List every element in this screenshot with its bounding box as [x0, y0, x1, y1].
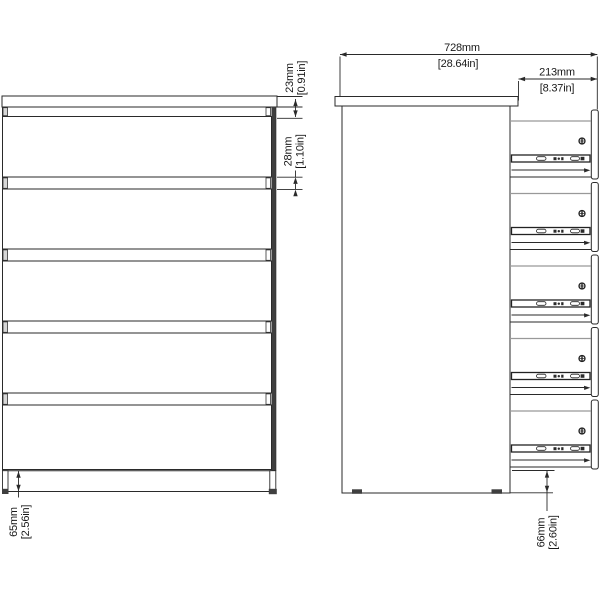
foot-pad — [492, 489, 503, 494]
drawer-front-5 — [3, 405, 272, 470]
drawer-front-2 — [3, 189, 272, 249]
dim-arrow — [16, 471, 20, 478]
technical-drawing-canvas: 728mm [28.64in] 213mm [8.37in] 23mm [0.9… — [0, 0, 600, 600]
side-view — [335, 97, 598, 494]
foot-pad — [352, 489, 362, 494]
dim-drawer-gap: 28mm [1.10in] — [277, 134, 307, 196]
dim-total-width-in: [28.64in] — [438, 58, 479, 70]
side-drawer-unit-4 — [510, 328, 598, 397]
foot-pad — [269, 489, 277, 494]
side-panel — [342, 106, 510, 493]
dim-drawer-gap-mm: 28mm — [283, 137, 295, 167]
dim-drawer-gap-in: [1.10in] — [295, 134, 307, 169]
side-drawer-unit-1 — [510, 110, 598, 179]
dim-top-reveal-mm: 23mm — [284, 63, 296, 93]
dim-side-base-mm: 66mm — [536, 518, 548, 548]
foot-pad — [2, 489, 9, 494]
front-top-panel — [2, 96, 277, 107]
dim-arrow — [591, 77, 598, 81]
dim-total-width-mm: 728mm — [444, 42, 480, 54]
dim-top-reveal: 23mm [0.91in] — [277, 61, 308, 119]
dim-arrow — [519, 77, 526, 81]
side-drawer-unit-5 — [510, 400, 598, 469]
drawer-front-3 — [3, 261, 272, 321]
dim-arrow — [545, 486, 549, 493]
dim-side-base-in: [2.60in] — [548, 515, 560, 550]
dim-arrow — [545, 471, 549, 478]
drawer-front-1 — [3, 117, 272, 178]
dim-arrow — [293, 100, 297, 107]
side-top-panel — [335, 97, 518, 107]
dim-drawer-depth-mm: 213mm — [539, 67, 575, 79]
dim-side-base: 66mm [2.60in] — [512, 471, 560, 550]
dim-arrow — [293, 190, 297, 197]
drawing-svg: 728mm [28.64in] 213mm [8.37in] 23mm [0.9… — [0, 0, 600, 600]
side-drawer-unit-3 — [510, 255, 598, 324]
dim-arrow — [340, 52, 347, 56]
front-plinth — [2, 471, 277, 494]
dim-arrow — [591, 52, 598, 56]
dim-front-base-mm: 65mm — [8, 507, 20, 537]
front-view — [2, 96, 277, 494]
dim-arrow — [16, 485, 20, 492]
dim-top-reveal-in: [0.91in] — [296, 61, 308, 96]
dim-drawer-depth: 213mm [8.37in] — [519, 67, 598, 101]
dim-arrow — [293, 110, 297, 117]
dim-front-base-in: [2.56in] — [20, 505, 32, 540]
front-right-foot — [270, 471, 276, 492]
front-side-panel-shaded-edge — [272, 107, 276, 471]
dim-arrow — [293, 177, 297, 184]
side-drawer-unit-2 — [510, 183, 598, 252]
dim-drawer-depth-in: [8.37in] — [540, 83, 575, 95]
front-left-foot — [3, 471, 9, 492]
dim-front-base: 65mm [2.56in] — [8, 471, 32, 540]
drawer-front-4 — [3, 333, 272, 393]
